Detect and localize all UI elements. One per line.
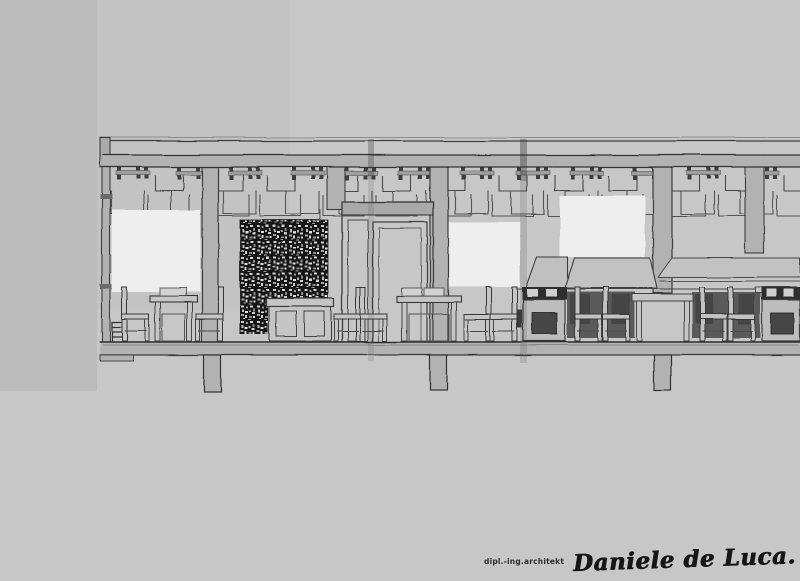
fold-line-2-dark-cap bbox=[520, 139, 527, 181]
left-exterior-wall bbox=[102, 167, 110, 343]
counter-table-top bbox=[632, 294, 693, 301]
floor-slab-body bbox=[100, 342, 800, 355]
cabinet-a-box-2 bbox=[546, 289, 557, 297]
table-leg bbox=[402, 302, 407, 341]
chair-front-leg bbox=[145, 319, 149, 341]
chair-front-leg bbox=[383, 319, 387, 341]
cabinet-a-box-1 bbox=[527, 289, 538, 297]
cabinet-d-box-1 bbox=[766, 289, 776, 297]
ceiling-rail bbox=[228, 171, 262, 175]
fold-line-1-dark-cap bbox=[368, 139, 374, 179]
cabinet-d-box-2 bbox=[783, 289, 793, 297]
pillar-3 bbox=[654, 355, 671, 390]
chair-seat bbox=[700, 314, 727, 319]
floor-left-step bbox=[100, 355, 133, 361]
table-leg bbox=[155, 302, 160, 341]
chair-seat bbox=[334, 314, 361, 319]
white-panel-counter-wall bbox=[560, 196, 645, 257]
table-item-box bbox=[160, 288, 186, 296]
chair-seat bbox=[728, 314, 755, 319]
chair-front-leg bbox=[626, 319, 630, 341]
scanned-drawing-page: dipl.-ing.architekt Daniele de Luca. bbox=[0, 0, 800, 581]
chair-front-leg bbox=[723, 319, 727, 341]
chair-front-leg bbox=[464, 319, 468, 341]
table-item-box bbox=[402, 288, 422, 296]
left-scanner-strip bbox=[0, 0, 97, 391]
section-drawing bbox=[0, 0, 800, 581]
table-top bbox=[150, 296, 197, 302]
ceiling-rail bbox=[291, 171, 325, 175]
ceiling-rail bbox=[398, 171, 432, 175]
sideboard-top bbox=[266, 298, 334, 306]
table-leg bbox=[187, 302, 192, 341]
chair-front-leg bbox=[490, 319, 494, 341]
ceiling-rail bbox=[116, 171, 150, 175]
ceiling-rail bbox=[570, 171, 604, 175]
pillar-2 bbox=[430, 355, 447, 390]
ceiling-post-right bbox=[745, 163, 764, 253]
white-panel-left-room bbox=[112, 210, 200, 292]
wall-tick-upper bbox=[100, 194, 112, 199]
signature-block: dipl.-ing.architekt Daniele de Luca. bbox=[484, 551, 796, 577]
chair-front-leg bbox=[751, 319, 755, 341]
roof-slab bbox=[103, 155, 800, 167]
chair-seat bbox=[490, 314, 517, 319]
chair-seat bbox=[603, 314, 630, 319]
architect-signature-name: Daniele de Luca. bbox=[573, 544, 797, 575]
chair-front-leg bbox=[196, 319, 200, 341]
chair-front-leg bbox=[598, 319, 602, 341]
mosaic-panel-lower-left bbox=[240, 300, 268, 334]
chair-front-leg bbox=[334, 319, 338, 341]
chair-seat bbox=[196, 314, 223, 319]
table-item-box bbox=[424, 288, 444, 296]
pillar-1 bbox=[204, 355, 221, 392]
white-panel-mid-room bbox=[448, 222, 520, 287]
table-top bbox=[397, 296, 461, 302]
chair-seat bbox=[464, 314, 491, 319]
ceiling-rail bbox=[460, 171, 494, 175]
cabinet-d-panel bbox=[771, 313, 794, 334]
glass-case-c bbox=[658, 258, 800, 277]
architect-credential: dipl.-ing.architekt bbox=[484, 558, 564, 566]
table-leg bbox=[451, 302, 456, 341]
wall-tick-lower bbox=[100, 284, 112, 289]
chair-seat bbox=[575, 314, 602, 319]
portal-header bbox=[342, 202, 433, 215]
mosaic-panel bbox=[240, 220, 328, 304]
glass-case-b bbox=[565, 258, 657, 288]
chair-seat bbox=[122, 314, 149, 319]
ceiling-rail bbox=[686, 171, 720, 175]
cabinet-a-panel bbox=[532, 313, 557, 334]
counter-table-leg-left bbox=[637, 301, 642, 341]
counter-table-leg-right bbox=[684, 301, 689, 341]
